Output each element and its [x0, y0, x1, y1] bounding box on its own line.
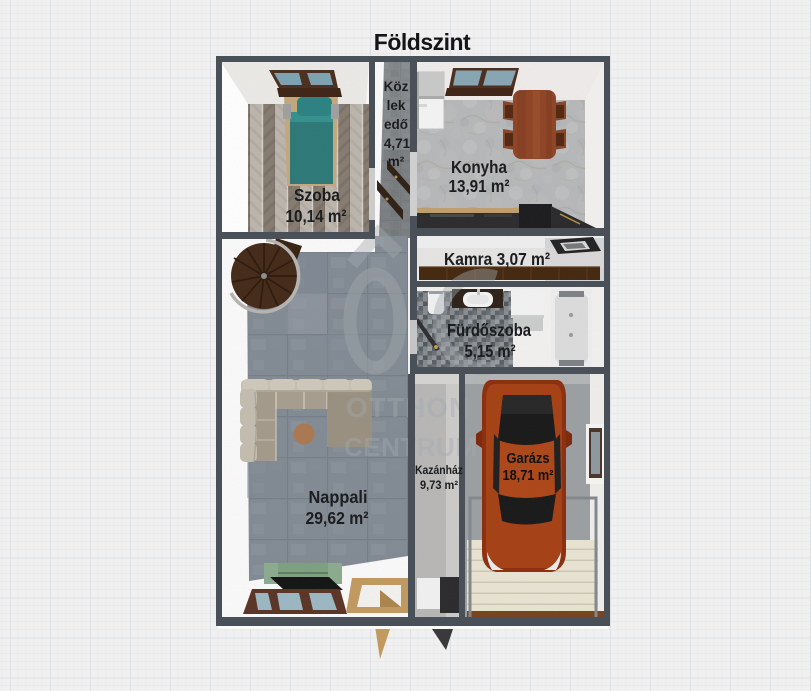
svg-text:Fürdőszoba: Fürdőszoba — [447, 320, 531, 340]
svg-text:29,62 m²: 29,62 m² — [306, 508, 369, 528]
svg-text:Nappali: Nappali — [309, 487, 368, 507]
svg-text:edő: edő — [384, 117, 408, 132]
svg-text:13,91 m²: 13,91 m² — [449, 176, 510, 196]
svg-text:4,71: 4,71 — [384, 136, 411, 151]
svg-text:18,71 m²: 18,71 m² — [503, 468, 554, 484]
svg-text:Szoba: Szoba — [294, 185, 340, 205]
svg-text:Köz: Köz — [384, 79, 409, 94]
svg-text:9,73 m²: 9,73 m² — [420, 478, 458, 492]
svg-text:Konyha: Konyha — [451, 157, 507, 177]
svg-text:Garázs: Garázs — [507, 451, 550, 467]
svg-text:m²: m² — [388, 154, 405, 169]
svg-text:lek: lek — [387, 98, 406, 113]
svg-text:10,14 m²: 10,14 m² — [286, 206, 347, 226]
svg-text:Földszint: Földszint — [374, 29, 471, 55]
svg-text:Kazánház: Kazánház — [415, 463, 463, 477]
svg-text:5,15 m²: 5,15 m² — [465, 341, 516, 361]
svg-text:Kamra 3,07 m²: Kamra 3,07 m² — [444, 249, 550, 269]
